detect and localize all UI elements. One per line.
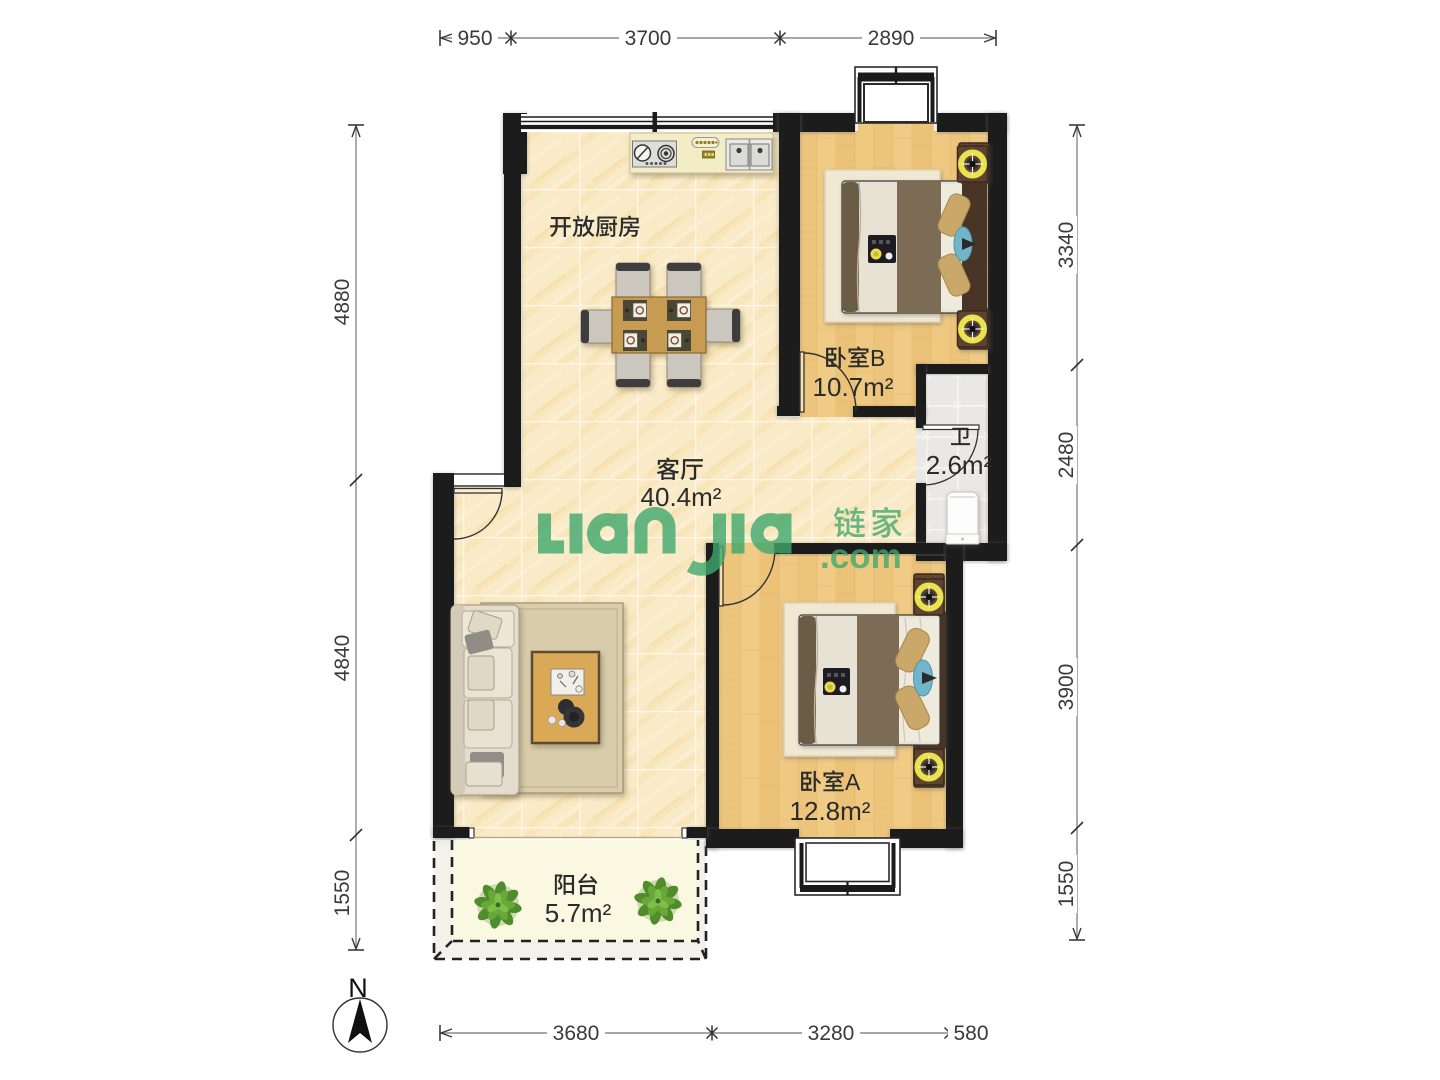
svg-text:3900: 3900 [1055, 664, 1078, 711]
svg-text:4840: 4840 [331, 635, 354, 682]
svg-text:2480: 2480 [1055, 432, 1078, 479]
svg-text:10.7m²: 10.7m² [813, 372, 894, 402]
svg-text:580: 580 [953, 1022, 988, 1045]
svg-text:3340: 3340 [1055, 222, 1078, 269]
svg-text:4880: 4880 [331, 279, 354, 326]
svg-text:2890: 2890 [868, 27, 915, 50]
svg-text:3680: 3680 [553, 1022, 600, 1045]
svg-text:.com: .com [820, 537, 902, 576]
svg-text:1550: 1550 [1055, 861, 1078, 908]
svg-text:1550: 1550 [331, 870, 354, 917]
svg-text:12.8m²: 12.8m² [790, 796, 871, 826]
svg-text:N: N [348, 973, 368, 1003]
svg-text:5.7m²: 5.7m² [545, 898, 612, 928]
svg-text:3280: 3280 [808, 1022, 855, 1045]
svg-text:3700: 3700 [625, 27, 672, 50]
svg-text:2.6m²: 2.6m² [926, 450, 993, 480]
svg-text:950: 950 [457, 27, 492, 50]
svg-text:A: A [845, 769, 861, 795]
svg-text:B: B [870, 345, 885, 371]
